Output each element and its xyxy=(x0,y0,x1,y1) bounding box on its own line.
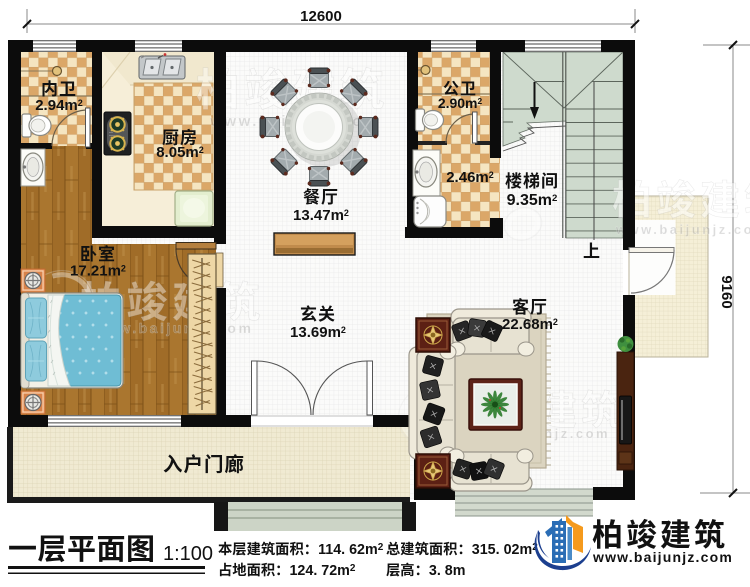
svg-text:上: 上 xyxy=(583,237,601,262)
svg-text:入户门廊: 入户门廊 xyxy=(163,448,245,477)
svg-text:客厅: 客厅 xyxy=(512,293,548,318)
svg-text:总建筑面积：315. 02m2: 总建筑面积：315. 02m2 xyxy=(386,538,538,559)
svg-text:2.94m2: 2.94m2 xyxy=(35,97,83,114)
svg-text:本层建筑面积：114. 62m2: 本层建筑面积：114. 62m2 xyxy=(218,538,384,559)
svg-text:9160: 9160 xyxy=(718,275,735,308)
svg-text:8.05m2: 8.05m2 xyxy=(156,144,204,161)
svg-text:层高：3. 8m: 层高：3. 8m xyxy=(386,559,465,580)
svg-text:www.baijunjz.com: www.baijunjz.com xyxy=(615,222,750,237)
svg-text:占地面积：124. 72m2: 占地面积：124. 72m2 xyxy=(218,559,356,580)
svg-text:9.35m2: 9.35m2 xyxy=(507,192,558,209)
svg-text:22.68m2: 22.68m2 xyxy=(502,316,558,333)
svg-text:1:100: 1:100 xyxy=(163,543,213,565)
svg-text:楼梯间: 楼梯间 xyxy=(505,167,559,192)
svg-text:2.90m2: 2.90m2 xyxy=(438,95,483,111)
svg-text:一层平面图: 一层平面图 xyxy=(8,526,156,568)
svg-text:17.21m2: 17.21m2 xyxy=(70,263,126,280)
svg-text:卧室: 卧室 xyxy=(80,240,116,265)
svg-text:2.46m2: 2.46m2 xyxy=(446,169,494,186)
svg-text:餐厅: 餐厅 xyxy=(303,183,339,208)
svg-text:13.47m2: 13.47m2 xyxy=(293,207,349,224)
svg-text:www.baijunjz.com: www.baijunjz.com xyxy=(592,549,733,565)
svg-text:玄关: 玄关 xyxy=(300,300,336,325)
svg-text:13.69m2: 13.69m2 xyxy=(290,324,346,341)
svg-text:12600: 12600 xyxy=(300,8,342,25)
